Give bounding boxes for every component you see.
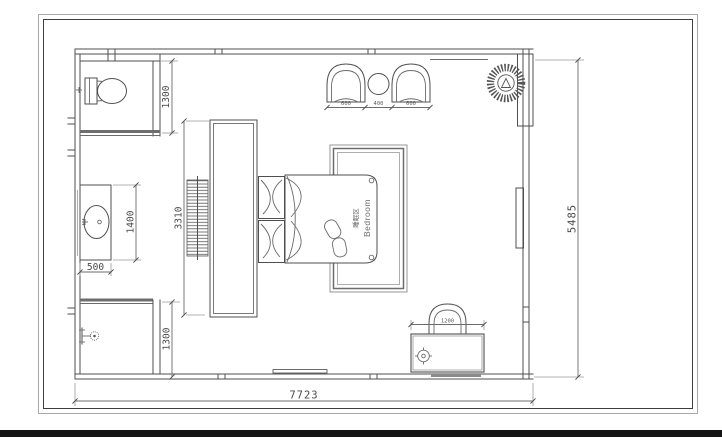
bottom-edge-bar xyxy=(0,430,722,437)
armchair-right xyxy=(392,64,430,102)
desk-wall-strip xyxy=(431,374,481,377)
dim-label: 1400 xyxy=(126,210,137,233)
dim-label: 3310 xyxy=(174,206,185,229)
armchair-left xyxy=(327,64,365,102)
dim-overall-height: 5485 xyxy=(534,58,584,379)
plant-fan-icon xyxy=(491,68,522,99)
dim-overall-width: 7723 xyxy=(73,383,535,406)
dim-label: 500 xyxy=(87,262,104,273)
dim-desk-width: 1200 xyxy=(409,319,486,331)
dressing-desk xyxy=(411,304,484,377)
sink-icon xyxy=(82,206,109,239)
dim-toilet-zone: 1300 xyxy=(160,59,178,135)
door-threshold xyxy=(273,370,327,374)
toilet-compartment xyxy=(76,54,160,136)
side-table xyxy=(368,74,389,95)
toilet-icon xyxy=(76,78,127,104)
dim-label: 400 xyxy=(374,101,384,107)
shower-compartment xyxy=(79,300,160,374)
pillow-icon xyxy=(259,177,285,263)
vanity-counter xyxy=(78,185,112,260)
floor-plan-screenshot: 睡眠区 Bedroom xyxy=(0,0,722,438)
dim-vanity-length: 1400 xyxy=(113,183,141,262)
dim-label: 600 xyxy=(406,101,416,107)
floor-plan-canvas: 睡眠区 Bedroom xyxy=(0,0,722,438)
dim-label: 1300 xyxy=(162,327,173,350)
dim-vanity-depth: 500 xyxy=(78,262,113,276)
room-label-zh: 睡眠区 xyxy=(352,208,360,228)
window-niche xyxy=(516,188,524,248)
dim-label: 1300 xyxy=(161,85,172,108)
hanger-rail-icon xyxy=(187,177,208,260)
room-label-en: Bedroom xyxy=(362,199,372,237)
dim-label: 600 xyxy=(341,101,351,107)
dim-shower-zone: 1300 xyxy=(162,300,181,379)
shower-head-icon xyxy=(79,328,99,344)
dim-label: 1200 xyxy=(441,319,454,325)
dim-label: 5485 xyxy=(567,204,579,233)
dim-label: 7723 xyxy=(289,390,318,402)
bed: 睡眠区 Bedroom xyxy=(259,175,378,263)
wardrobe xyxy=(187,120,257,317)
